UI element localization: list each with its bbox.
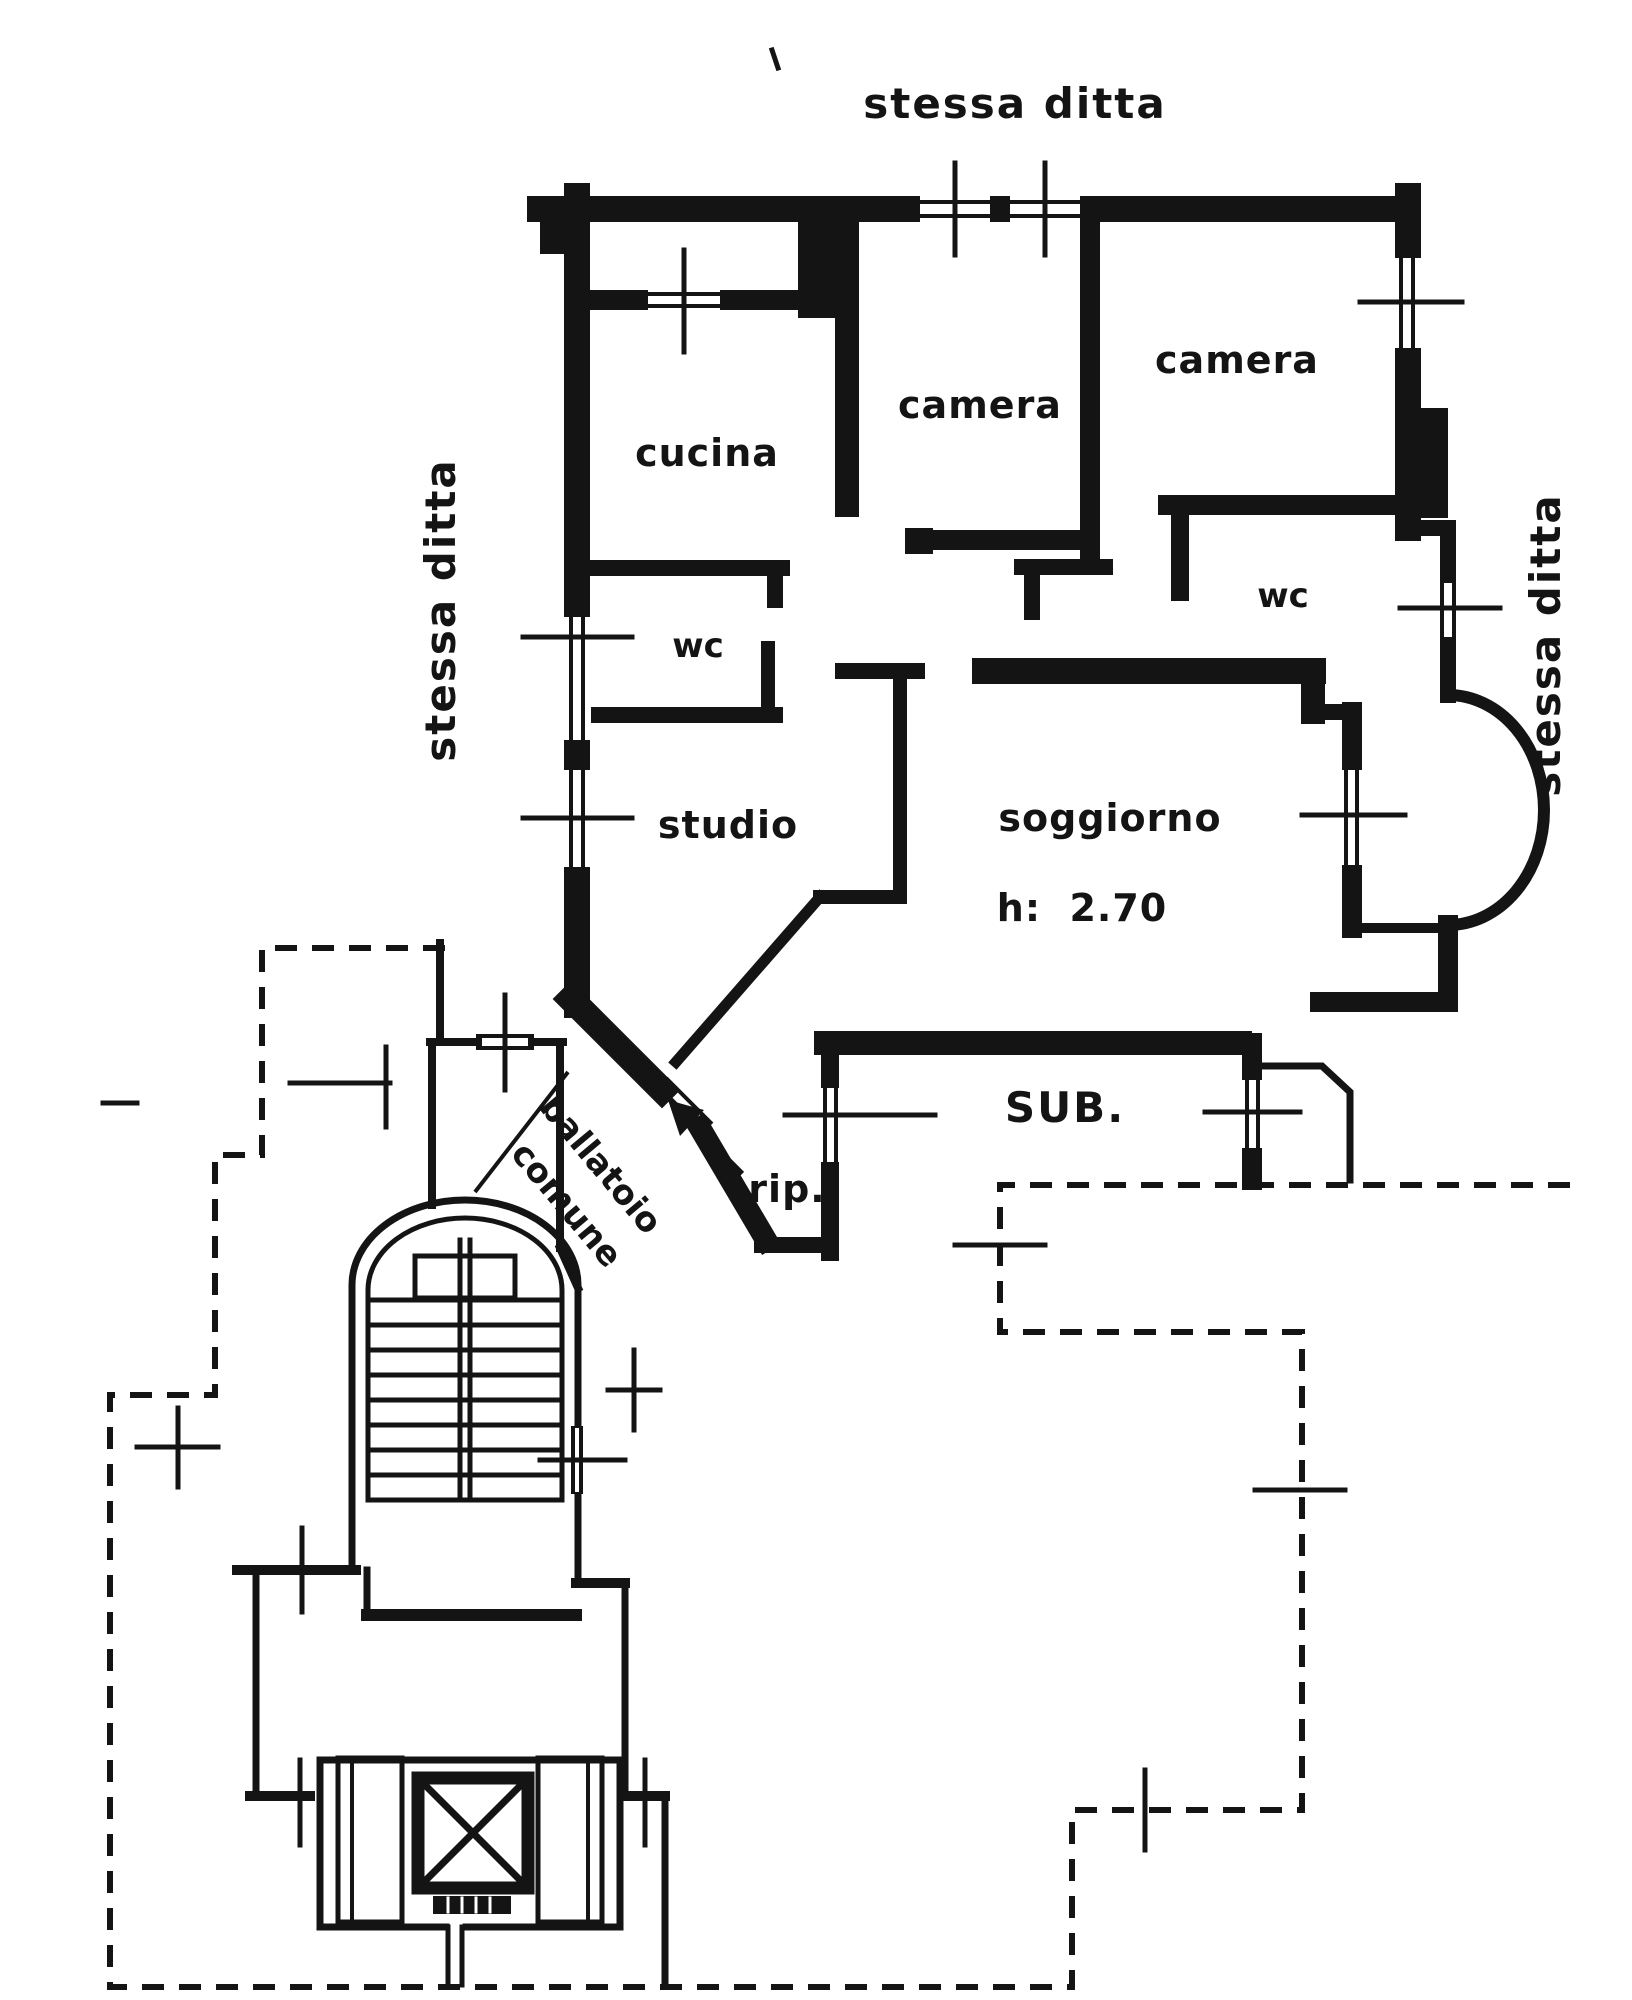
label-stessa-ditta-right: stessa ditta xyxy=(1521,493,1570,796)
elevator-door xyxy=(433,1896,511,1914)
label-soggiorno: soggiorno xyxy=(998,796,1221,840)
stair-landing xyxy=(415,1256,515,1298)
label-wc-left: wc xyxy=(672,626,724,666)
scan-mark xyxy=(772,50,778,68)
door-jamb xyxy=(905,528,933,554)
wall-ext-block xyxy=(1414,408,1448,518)
dashed-boundary xyxy=(110,948,1575,1987)
label-studio: studio xyxy=(658,803,798,847)
elevator-flank-left xyxy=(338,1758,402,1922)
label-stessa-ditta-top: stessa ditta xyxy=(863,79,1166,128)
label-stessa-ditta-left: stessa ditta xyxy=(416,458,465,761)
wall-niche-block xyxy=(798,196,850,318)
wall-entrance-diagonal xyxy=(571,999,662,1090)
label-cucina: cucina xyxy=(635,431,779,475)
floorplan-drawing: stessa ditta stessa ditta stessa ditta c… xyxy=(0,0,1632,2000)
label-wc-right: wc xyxy=(1257,576,1309,616)
floorplan-sheet: stessa ditta stessa ditta stessa ditta c… xyxy=(0,0,1632,2000)
label-camera-top: camera xyxy=(898,383,1062,427)
elevator-flank-right xyxy=(538,1758,602,1922)
label-sub: SUB. xyxy=(1005,1083,1125,1132)
stair-inner xyxy=(368,1218,562,1500)
wall-sub-steps xyxy=(1262,1066,1350,1180)
label-camera-right: camera xyxy=(1155,338,1319,382)
dashed-property-line xyxy=(110,948,1575,1987)
label-rip: rip. xyxy=(748,1167,825,1211)
wall-studio-diag xyxy=(676,897,820,1062)
label-soggiorno-height: h: 2.70 xyxy=(997,886,1167,930)
